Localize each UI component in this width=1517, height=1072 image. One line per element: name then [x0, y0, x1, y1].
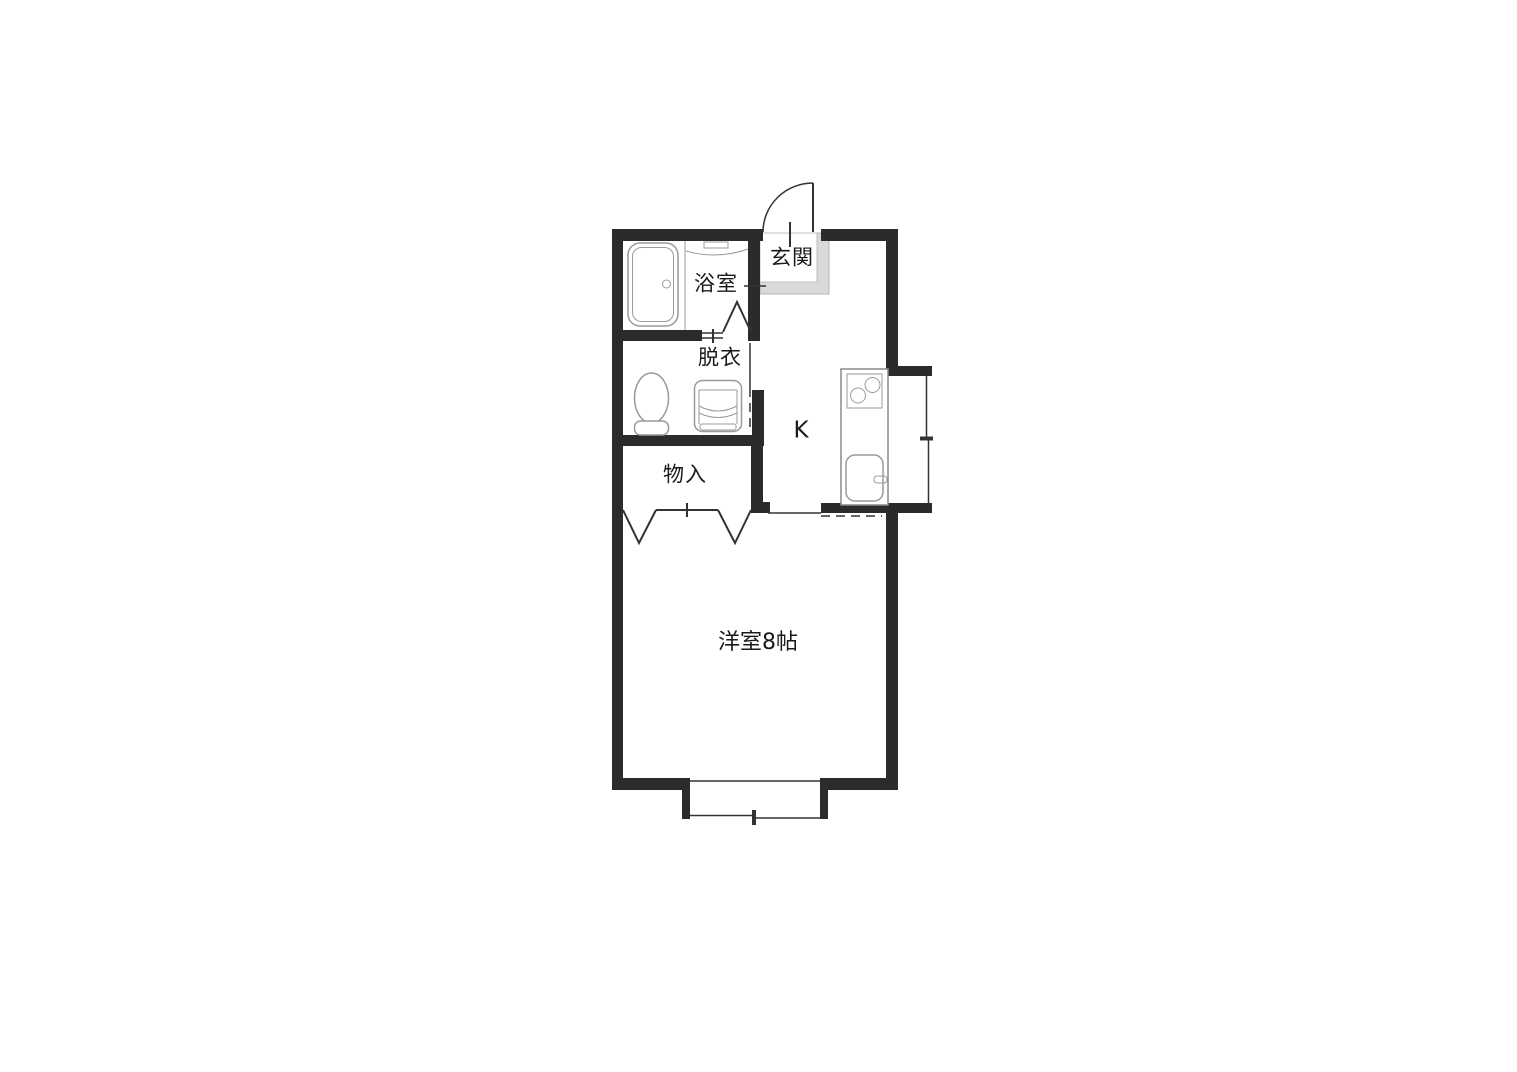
dressing-label: 脱衣	[698, 348, 742, 369]
window-bottom-icon	[689, 781, 821, 825]
western-room-label: 洋室8帖	[718, 632, 798, 654]
entrance-label: 玄関	[770, 248, 814, 269]
floorplan-canvas: 浴室 脱衣 玄関 K 物入 洋室8帖	[0, 0, 1517, 1072]
kitchen-unit-icon	[841, 369, 888, 505]
bath-folding-door-icon	[702, 302, 751, 343]
closet-folding-door-icon	[623, 503, 751, 543]
window-right-icon	[920, 376, 933, 503]
kitchen-boundary-line	[768, 513, 882, 516]
bath-label: 浴室	[694, 274, 738, 295]
floorplan-drawing	[0, 0, 1517, 1072]
washing-machine-icon	[695, 381, 742, 432]
toilet-icon	[635, 373, 669, 435]
walls	[612, 229, 932, 819]
kitchen-label: K	[793, 420, 808, 443]
closet-label: 物入	[663, 465, 707, 486]
